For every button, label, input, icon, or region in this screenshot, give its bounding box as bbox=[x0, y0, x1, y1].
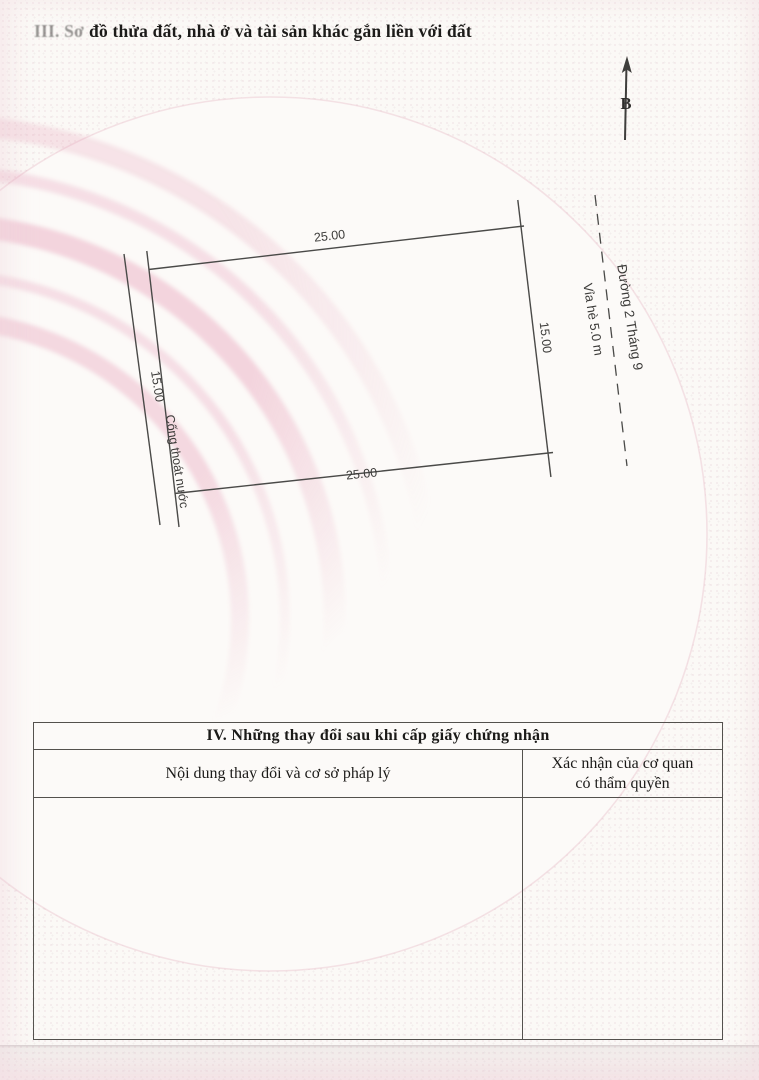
section3-title-faded: III. Sơ bbox=[34, 21, 84, 41]
section3-title-text: đồ thửa đất, nhà ở và tài sản khác gắn l… bbox=[89, 21, 472, 41]
authority-confirm-cell bbox=[523, 798, 722, 1039]
col-header-authority-line1: Xác nhận của cơ quan bbox=[552, 754, 694, 774]
change-content-cell bbox=[34, 798, 523, 1039]
certificate-page: B 25.00 25.00 15.00 15.00 Cống thoát nướ… bbox=[0, 0, 759, 1080]
col-header-authority-line2: có thẩm quyền bbox=[575, 774, 669, 794]
section4-changes-table: IV. Những thay đổi sau khi cấp giấy chứn… bbox=[33, 722, 723, 1040]
section4-empty-row bbox=[34, 798, 722, 1039]
col-header-change-content: Nội dung thay đổi và cơ sở pháp lý bbox=[34, 750, 523, 797]
section3-title: III. Sơđồ thửa đất, nhà ở và tài sản khá… bbox=[34, 21, 734, 42]
section4-header-row: Nội dung thay đổi và cơ sở pháp lý Xác n… bbox=[34, 750, 722, 798]
north-label: B bbox=[620, 94, 631, 113]
section4-title: IV. Những thay đổi sau khi cấp giấy chứn… bbox=[34, 723, 722, 750]
col-header-authority-confirm: Xác nhận của cơ quan có thẩm quyền bbox=[523, 750, 722, 797]
